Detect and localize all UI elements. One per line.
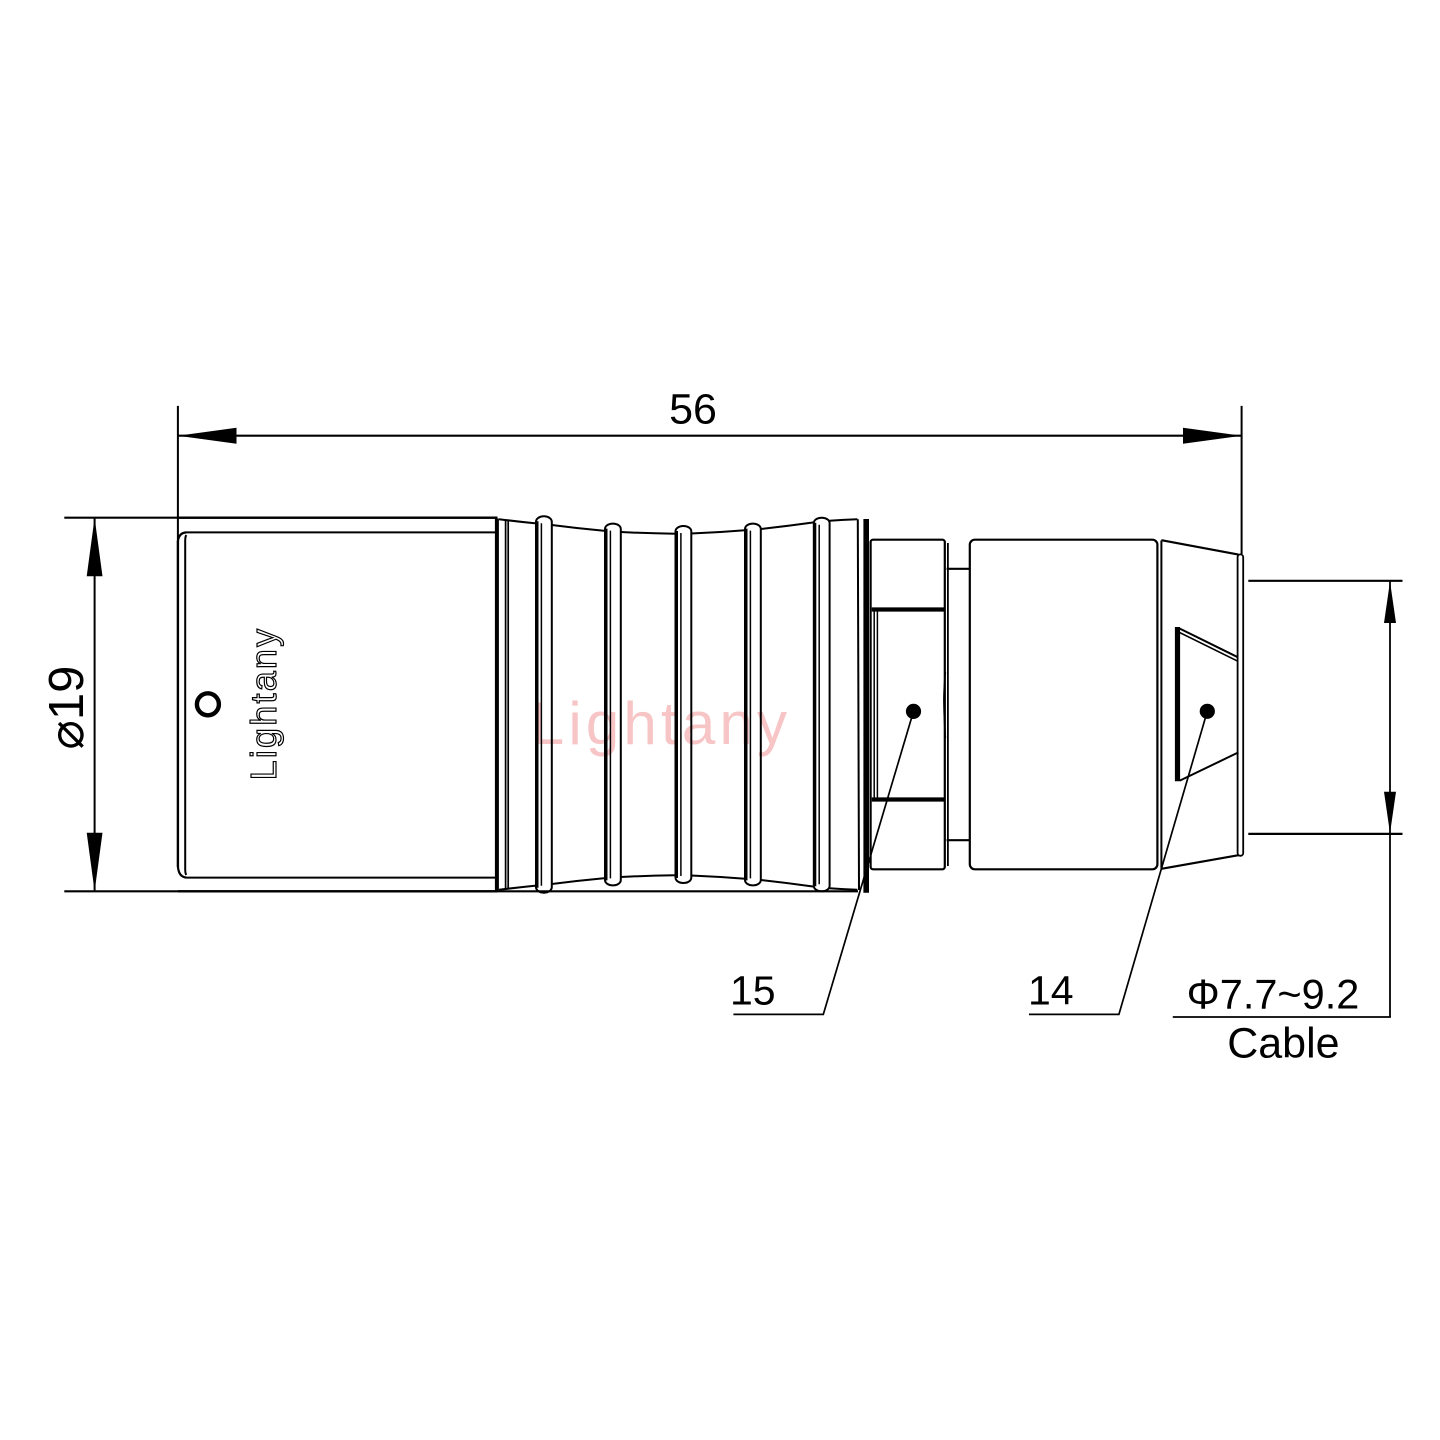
svg-text:56: 56: [669, 386, 717, 434]
svg-text:Lightany: Lightany: [243, 627, 284, 781]
svg-text:⌀19: ⌀19: [40, 666, 94, 750]
svg-text:Lightany: Lightany: [531, 690, 791, 757]
svg-text:14: 14: [1028, 968, 1074, 1014]
svg-text:Cable: Cable: [1227, 1020, 1339, 1068]
svg-text:15: 15: [730, 968, 776, 1014]
svg-text:Φ7.7~9.2: Φ7.7~9.2: [1187, 971, 1360, 1018]
